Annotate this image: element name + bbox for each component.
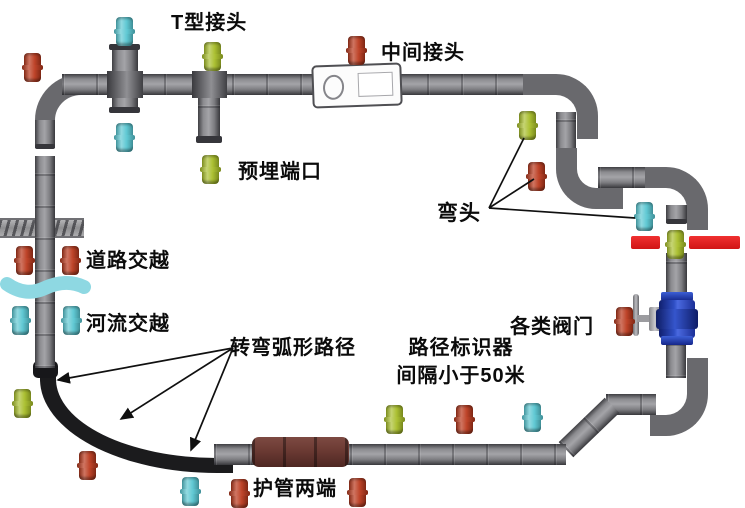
green-path-marker bbox=[202, 155, 219, 184]
red-path-marker bbox=[231, 479, 248, 508]
label-middle-joint: 中间接头 bbox=[381, 36, 465, 65]
cyan-path-marker bbox=[182, 477, 199, 506]
green-path-marker bbox=[667, 230, 684, 259]
green-path-marker bbox=[204, 42, 221, 71]
label-embedded-port: 预埋端口 bbox=[238, 155, 322, 184]
label-river-crossing: 河流交越 bbox=[86, 307, 170, 336]
label-elbow: 弯头 bbox=[437, 197, 481, 227]
label-path-marker: 路径标识器 间隔小于50米 bbox=[390, 334, 532, 390]
label-duct-ends: 护管两端 bbox=[253, 472, 337, 501]
red-path-marker bbox=[348, 36, 365, 65]
red-path-marker bbox=[62, 246, 79, 275]
pipeline-diagram: T型接头 中间接头 预埋端口 道路交越 河流交越 弯头 各类阀门 转弯弧形路径 … bbox=[0, 0, 745, 508]
green-path-marker bbox=[386, 405, 403, 434]
label-road-crossing: 道路交越 bbox=[86, 244, 170, 273]
red-path-marker bbox=[349, 478, 366, 507]
cyan-path-marker bbox=[636, 202, 653, 231]
label-path-marker-line1: 路径标识器 bbox=[390, 334, 532, 362]
green-path-marker bbox=[14, 389, 31, 418]
cyan-path-marker bbox=[116, 17, 133, 46]
label-t-joint: T型接头 bbox=[171, 6, 247, 35]
red-path-marker bbox=[456, 405, 473, 434]
green-path-marker bbox=[519, 111, 536, 140]
cyan-path-marker bbox=[116, 123, 133, 152]
red-path-marker bbox=[24, 53, 41, 82]
cyan-path-marker bbox=[12, 306, 29, 335]
cyan-path-marker bbox=[524, 403, 541, 432]
cyan-path-marker bbox=[63, 306, 80, 335]
red-path-marker bbox=[616, 307, 633, 336]
label-path-marker-line2: 间隔小于50米 bbox=[390, 362, 532, 390]
red-path-marker bbox=[79, 451, 96, 480]
red-path-marker bbox=[16, 246, 33, 275]
label-arc-path: 转弯弧形路径 bbox=[230, 331, 356, 360]
red-path-marker bbox=[528, 162, 545, 191]
